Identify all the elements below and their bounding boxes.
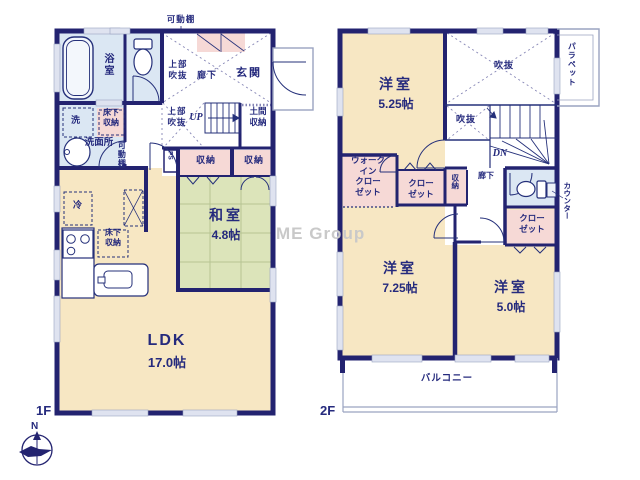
label-storage-a: 収納: [196, 155, 216, 167]
label-bedroom-a: 洋室: [379, 75, 413, 93]
label-upper-void-b: 上部 吹抜: [167, 106, 186, 128]
label-ldk: LDK: [148, 331, 187, 352]
label-storage-2f: 収納: [450, 174, 460, 189]
label-compass-north: N: [31, 420, 38, 433]
label-counter: カウンター: [562, 182, 572, 220]
bathtub-icon: [63, 37, 93, 99]
floorplan-canvas: 可動棚 浴室 上部 吹抜 廊下 玄関 洗 床下 収納 洗面所 可動棚 上部 吹抜…: [0, 0, 640, 480]
label-bedroom-b: 洋室: [383, 259, 417, 277]
label-pipe-space: PS: [165, 151, 173, 160]
label-doma-storage: 土間 収納: [249, 106, 266, 128]
label-stairs-up: UP: [189, 111, 202, 124]
floor2-plan: [337, 28, 599, 412]
label-void-b: 吹抜: [456, 114, 476, 126]
compass-icon: [19, 431, 52, 465]
label-closet-a: クロー ゼット: [408, 178, 434, 200]
label-japanese-room-size: 4.8帖: [212, 228, 241, 244]
label-bathroom: 浴室: [101, 53, 114, 77]
label-entrance: 玄関: [236, 66, 262, 80]
label-underfloor-b: 床下 収納: [105, 228, 121, 249]
label-ldk-size: 17.0帖: [148, 355, 186, 372]
label-balcony: バルコニー: [421, 373, 473, 385]
label-void-a: 吹抜: [494, 60, 514, 72]
label-walk-in-closet: ウォーク イン クロー ゼット: [351, 155, 385, 198]
watermark: ME Group: [276, 224, 365, 244]
label-stairs-down: DN: [493, 147, 507, 160]
label-parapet: パラペット: [566, 42, 576, 87]
label-bedroom-a-size: 5.25帖: [378, 97, 413, 113]
label-bedroom-c-size: 5.0帖: [497, 300, 526, 316]
stove-icon: [63, 230, 93, 258]
label-fridge: 冷: [73, 200, 83, 212]
label-bedroom-b-size: 7.25帖: [382, 281, 417, 297]
label-floor1: 1F: [36, 403, 51, 420]
label-upper-void-a: 上部 吹抜: [168, 59, 187, 81]
label-laundry: 洗: [71, 115, 81, 127]
parapet-outline: [557, 29, 599, 106]
label-storage-b: 収納: [244, 155, 264, 167]
label-hallway-2f: 廊下: [478, 171, 494, 181]
label-floor2: 2F: [320, 403, 335, 420]
toilet-2f-icon: [517, 181, 563, 198]
label-washroom: 洗面所: [85, 137, 114, 149]
label-hallway-1f: 廊下: [197, 70, 217, 82]
label-shelf-top: 可動棚: [167, 14, 196, 25]
label-japanese-room: 和室: [209, 206, 243, 224]
label-underfloor-a: 床下 収納: [103, 108, 119, 129]
toilet-1f-icon: [134, 39, 152, 75]
label-bedroom-c: 洋室: [494, 278, 528, 296]
label-shelf-side: 可動棚: [116, 141, 126, 168]
entrance-porch: [273, 48, 313, 110]
label-closet-b: クロー ゼット: [519, 213, 545, 235]
